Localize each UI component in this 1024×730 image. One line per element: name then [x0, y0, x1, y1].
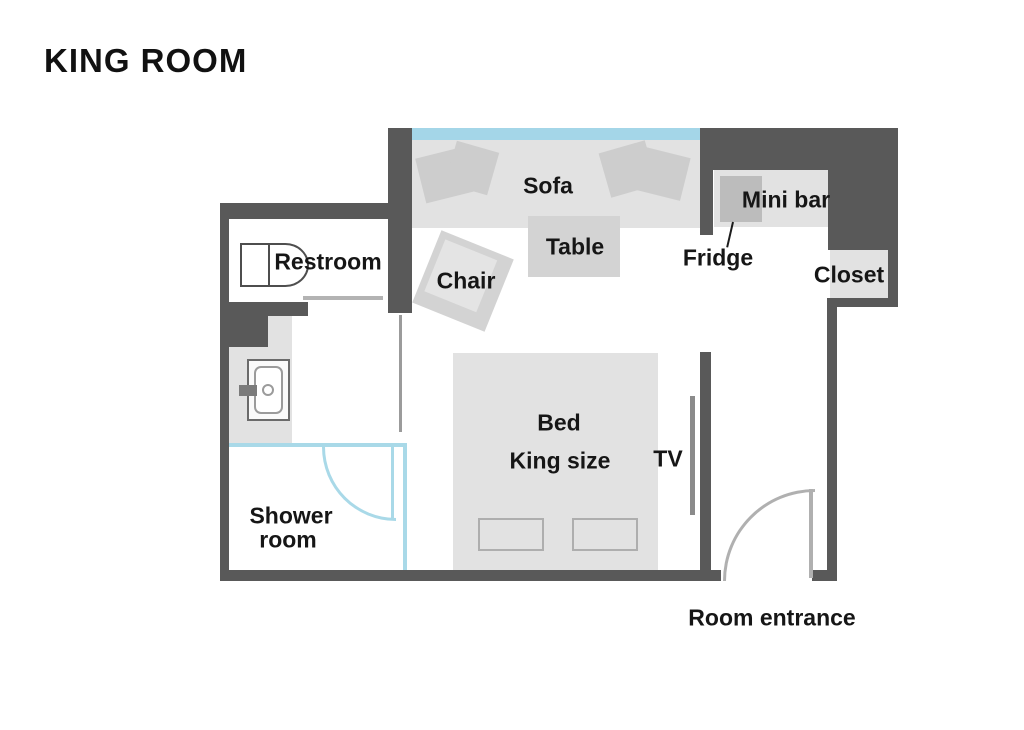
- wall-vanity-block: [224, 316, 268, 347]
- wall-tv: [700, 352, 711, 581]
- wall-restroom-top: [220, 203, 390, 219]
- wall-restroom-right: [388, 128, 412, 313]
- partition-line: [399, 315, 402, 432]
- wall-bottom: [220, 570, 721, 581]
- chair-label: Chair: [437, 270, 496, 293]
- tv-label: TV: [653, 448, 682, 471]
- restroom-door-line: [303, 296, 383, 300]
- bed-pillow-icon: [478, 518, 544, 551]
- wall-minibar-left: [700, 128, 713, 235]
- room-entrance-label: Room entrance: [688, 607, 855, 630]
- sink-tap-icon: [239, 385, 257, 396]
- floor-plan: KING ROOM: [0, 0, 1024, 730]
- closet-label: Closet: [814, 264, 884, 287]
- window: [412, 128, 700, 140]
- bed-size-label: King size: [510, 450, 611, 473]
- wall-left: [220, 203, 229, 581]
- table-label: Table: [546, 236, 604, 259]
- wall-minibar-right: [828, 170, 898, 250]
- shower-room-label-line2: room: [259, 529, 317, 552]
- wall-restroom-bottom: [220, 302, 308, 316]
- sofa-label: Sofa: [523, 175, 573, 198]
- wall-closet-bottom: [830, 298, 898, 307]
- bed-pillow-icon: [572, 518, 638, 551]
- entrance-door-swing-arc: [723, 489, 815, 581]
- bed-label: Bed: [537, 412, 580, 435]
- page-title: KING ROOM: [44, 42, 247, 80]
- fridge-label: Fridge: [683, 247, 753, 270]
- tv-icon: [690, 396, 695, 515]
- wall-top-right: [700, 128, 898, 170]
- toilet-tank-icon: [240, 243, 270, 287]
- shower-door-swing-arc: [322, 447, 396, 521]
- shower-room-label-line1: Shower: [249, 505, 332, 528]
- restroom-label: Restroom: [274, 251, 381, 274]
- shower-wall-right: [403, 443, 407, 573]
- wall-right: [827, 298, 837, 581]
- minibar-label: Mini bar: [742, 189, 830, 212]
- sink-drain-icon: [262, 384, 274, 396]
